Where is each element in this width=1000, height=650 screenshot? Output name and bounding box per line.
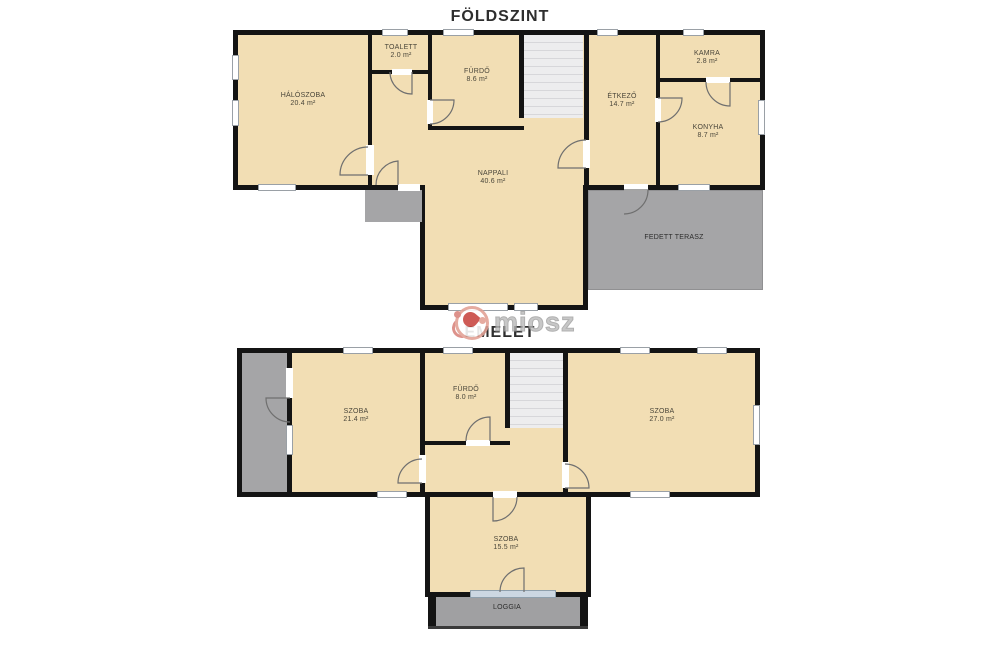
wall-segment — [428, 626, 588, 629]
room-area: 21.4 m² — [343, 416, 368, 424]
watermark: miosz — [452, 303, 576, 341]
room-area: 15.5 m² — [493, 544, 518, 552]
room-label-szoba-left: SZOBA 21.4 m² — [343, 408, 368, 424]
room-label-etkezo: ÉTKEZŐ 14.7 m² — [607, 93, 636, 109]
room-area: 2.0 m² — [385, 52, 418, 60]
room-name: FÜRDŐ — [464, 68, 490, 76]
room-label-furdo-ground: FÜRDŐ 8.6 m² — [464, 68, 490, 84]
window-symbol — [683, 29, 704, 36]
wall-segment — [656, 35, 660, 98]
window-symbol — [620, 347, 650, 354]
room-label-szoba-bottom: SZOBA 15.5 m² — [493, 536, 518, 552]
window-symbol — [377, 491, 407, 498]
wall-segment — [428, 35, 432, 100]
window-symbol — [232, 55, 239, 80]
room-area: 8.6 m² — [464, 76, 490, 84]
window-symbol — [697, 347, 727, 354]
watermark-text: miosz — [494, 307, 576, 338]
room-name: TOALETT — [385, 44, 418, 52]
door-opening — [427, 100, 433, 124]
door-opening — [562, 462, 569, 488]
room-name: KONYHA — [693, 124, 724, 132]
window-symbol — [630, 491, 670, 498]
room-name: ÉTKEZŐ — [607, 93, 636, 101]
wall-segment — [287, 455, 292, 497]
door-opening — [466, 440, 490, 446]
room-label-furdo-upper: FÜRDŐ 8.0 m² — [453, 386, 479, 402]
window-symbol — [758, 100, 765, 135]
wall-segment — [428, 597, 436, 629]
room-name: FÜRDŐ — [453, 386, 479, 394]
window-symbol — [382, 29, 408, 36]
ground-staircase — [524, 35, 583, 118]
wall-segment — [420, 348, 425, 455]
wall-segment — [430, 492, 493, 497]
door-opening — [655, 98, 661, 122]
room-name: FEDETT TERASZ — [644, 234, 703, 242]
room-area: 8.7 m² — [693, 132, 724, 140]
window-symbol — [753, 405, 760, 445]
room-area: 20.4 m² — [281, 100, 326, 108]
window-symbol — [443, 29, 474, 36]
upper-staircase — [510, 353, 563, 428]
door-opening — [706, 77, 730, 83]
door-opening — [398, 184, 420, 191]
wall-segment — [368, 70, 392, 74]
wall-segment — [519, 35, 524, 118]
watermark-logo-icon — [452, 303, 490, 341]
window-symbol — [258, 184, 296, 191]
door-opening — [419, 455, 426, 483]
room-label-kamra: KAMRA 2.8 m² — [694, 50, 720, 66]
wall-segment — [505, 348, 510, 428]
wall-segment — [368, 35, 372, 145]
room-label-toalett: TOALETT 2.0 m² — [385, 44, 418, 60]
wall-segment — [420, 441, 466, 445]
room-area: 2.8 m² — [694, 58, 720, 66]
room-area: 27.0 m² — [649, 416, 674, 424]
room-area: 40.6 m² — [478, 178, 508, 186]
ground-side-patio — [365, 190, 422, 222]
room-name: SZOBA — [493, 536, 518, 544]
door-opening — [493, 491, 517, 498]
room-area: 8.0 m² — [453, 394, 479, 402]
upper-balcony-area — [242, 353, 288, 492]
wall-segment — [584, 168, 589, 190]
livingroom-interior — [425, 115, 583, 305]
wall-segment — [730, 78, 760, 82]
room-label-nappali: NAPPALI 40.6 m² — [478, 170, 508, 186]
door-opening — [366, 145, 374, 175]
room-name: HÁLÓSZOBA — [281, 92, 326, 100]
room-label-szoba-right: SZOBA 27.0 m² — [649, 408, 674, 424]
wall-segment — [656, 122, 660, 185]
wall-segment — [287, 348, 292, 368]
room-name: SZOBA — [649, 408, 674, 416]
room-label-loggia: LOGGIA — [493, 604, 521, 612]
wall-segment — [656, 78, 706, 82]
loggia-window-symbol — [470, 590, 556, 598]
door-opening — [624, 184, 648, 191]
wall-segment — [428, 126, 524, 130]
room-label-fedett-terasz: FEDETT TERASZ — [644, 234, 703, 242]
wall-segment — [584, 35, 589, 140]
window-symbol — [232, 100, 239, 126]
window-symbol — [678, 184, 710, 191]
door-opening — [392, 69, 412, 75]
wall-segment — [517, 492, 586, 497]
room-name: KAMRA — [694, 50, 720, 58]
room-name: NAPPALI — [478, 170, 508, 178]
door-opening — [286, 368, 293, 398]
door-opening — [583, 140, 590, 168]
wall-segment — [580, 597, 588, 629]
wall-segment — [368, 175, 372, 185]
floor-plan-canvas: FÖLDSZINT HÁLÓSZOBA 20.4 m² — [0, 0, 1000, 650]
wall-segment — [490, 441, 510, 445]
ground-floor-title: FÖLDSZINT — [0, 8, 1000, 26]
wall-segment — [563, 348, 568, 462]
window-symbol — [597, 29, 618, 36]
room-label-haloszoba: HÁLÓSZOBA 20.4 m² — [281, 92, 326, 108]
room-name: SZOBA — [343, 408, 368, 416]
room-label-konyha: KONYHA 8.7 m² — [693, 124, 724, 140]
window-symbol — [286, 425, 293, 455]
wall-segment — [420, 483, 425, 497]
window-symbol — [343, 347, 373, 354]
room-name: LOGGIA — [493, 604, 521, 612]
window-symbol — [443, 347, 473, 354]
room-area: 14.7 m² — [607, 101, 636, 109]
wall-segment — [287, 398, 292, 425]
